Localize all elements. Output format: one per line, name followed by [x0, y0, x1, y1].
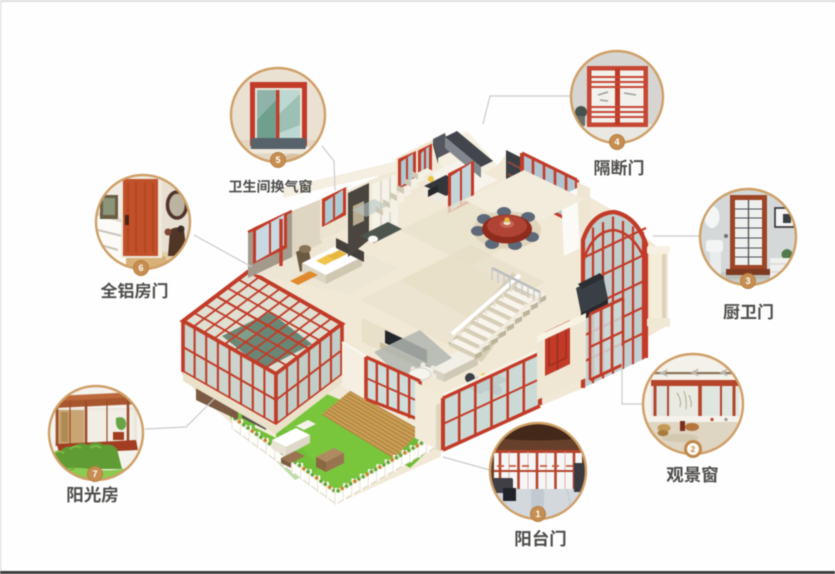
- svg-text:2: 2: [691, 445, 696, 454]
- svg-text:3: 3: [745, 276, 750, 286]
- svg-text:6: 6: [138, 263, 143, 273]
- svg-text:4: 4: [614, 137, 619, 147]
- svg-text:7: 7: [92, 469, 97, 479]
- svg-text:1: 1: [535, 509, 540, 519]
- svg-text:5: 5: [275, 155, 280, 165]
